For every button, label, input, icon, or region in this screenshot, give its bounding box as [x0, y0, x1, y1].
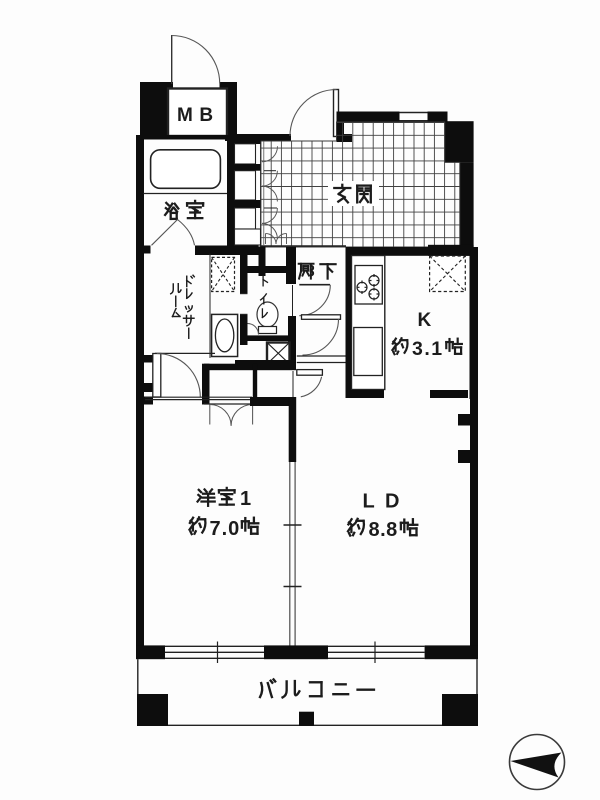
svg-text:8.8: 8.8 [369, 519, 398, 541]
svg-text:3.1: 3.1 [412, 338, 444, 360]
svg-text:1: 1 [240, 488, 251, 510]
svg-text:7.0: 7.0 [210, 518, 241, 540]
svg-text:D: D [385, 491, 399, 513]
svg-text:L: L [363, 491, 375, 513]
svg-text:K: K [418, 310, 433, 331]
svg-text:MB: MB [177, 105, 220, 126]
